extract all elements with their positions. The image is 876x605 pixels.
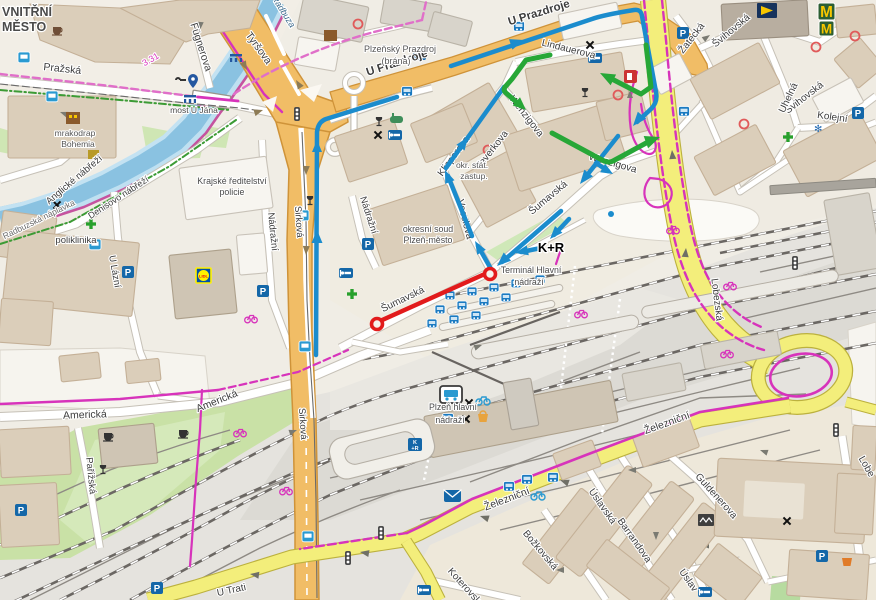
svg-text:Krajské ředitelství: Krajské ředitelství — [197, 176, 267, 186]
svg-text:Sirková: Sirková — [296, 408, 309, 441]
svg-text:✻: ✻ — [814, 124, 822, 135]
svg-text:P: P — [819, 552, 826, 563]
svg-text:P: P — [855, 109, 862, 120]
svg-text:Plzeňský Prazdroj: Plzeňský Prazdroj — [364, 44, 436, 54]
svg-text:Americká: Americká — [63, 408, 107, 422]
svg-text:M: M — [820, 4, 833, 21]
svg-text:VNITŘNÍ: VNITŘNÍ — [2, 4, 53, 19]
svg-text:Bohemia: Bohemia — [61, 139, 95, 149]
svg-text:Sirková: Sirková — [292, 206, 305, 239]
svg-text:P: P — [18, 506, 25, 517]
svg-text:okr. stát.: okr. stát. — [456, 160, 488, 170]
svg-text:poliklinika: poliklinika — [55, 235, 97, 246]
svg-text:Plzeň-město: Plzeň-město — [404, 235, 453, 245]
svg-text:okresní soud: okresní soud — [403, 224, 453, 234]
svg-text:nádraží: nádraží — [435, 415, 465, 425]
svg-text:P: P — [154, 584, 161, 595]
svg-text:K+R: K+R — [538, 240, 565, 255]
svg-text:M: M — [821, 21, 832, 36]
svg-text:MĚSTO: MĚSTO — [2, 19, 46, 34]
svg-text:nádraží: nádraží — [514, 277, 544, 287]
svg-text:(brána): (brána) — [381, 56, 410, 66]
svg-text:P: P — [125, 268, 132, 279]
svg-text:Terminál Hlavní: Terminál Hlavní — [501, 265, 562, 275]
svg-text:P: P — [260, 287, 267, 298]
svg-text:policie: policie — [220, 187, 245, 197]
svg-text:most U Jána: most U Jána — [170, 105, 218, 115]
svg-text:zastup.: zastup. — [460, 171, 487, 181]
svg-text:LIDL: LIDL — [199, 274, 208, 279]
svg-text:Plzeň hlavní: Plzeň hlavní — [429, 402, 477, 412]
svg-text:P: P — [365, 240, 372, 251]
svg-text:mrakodrap: mrakodrap — [55, 128, 96, 138]
svg-text:+R: +R — [411, 446, 418, 452]
